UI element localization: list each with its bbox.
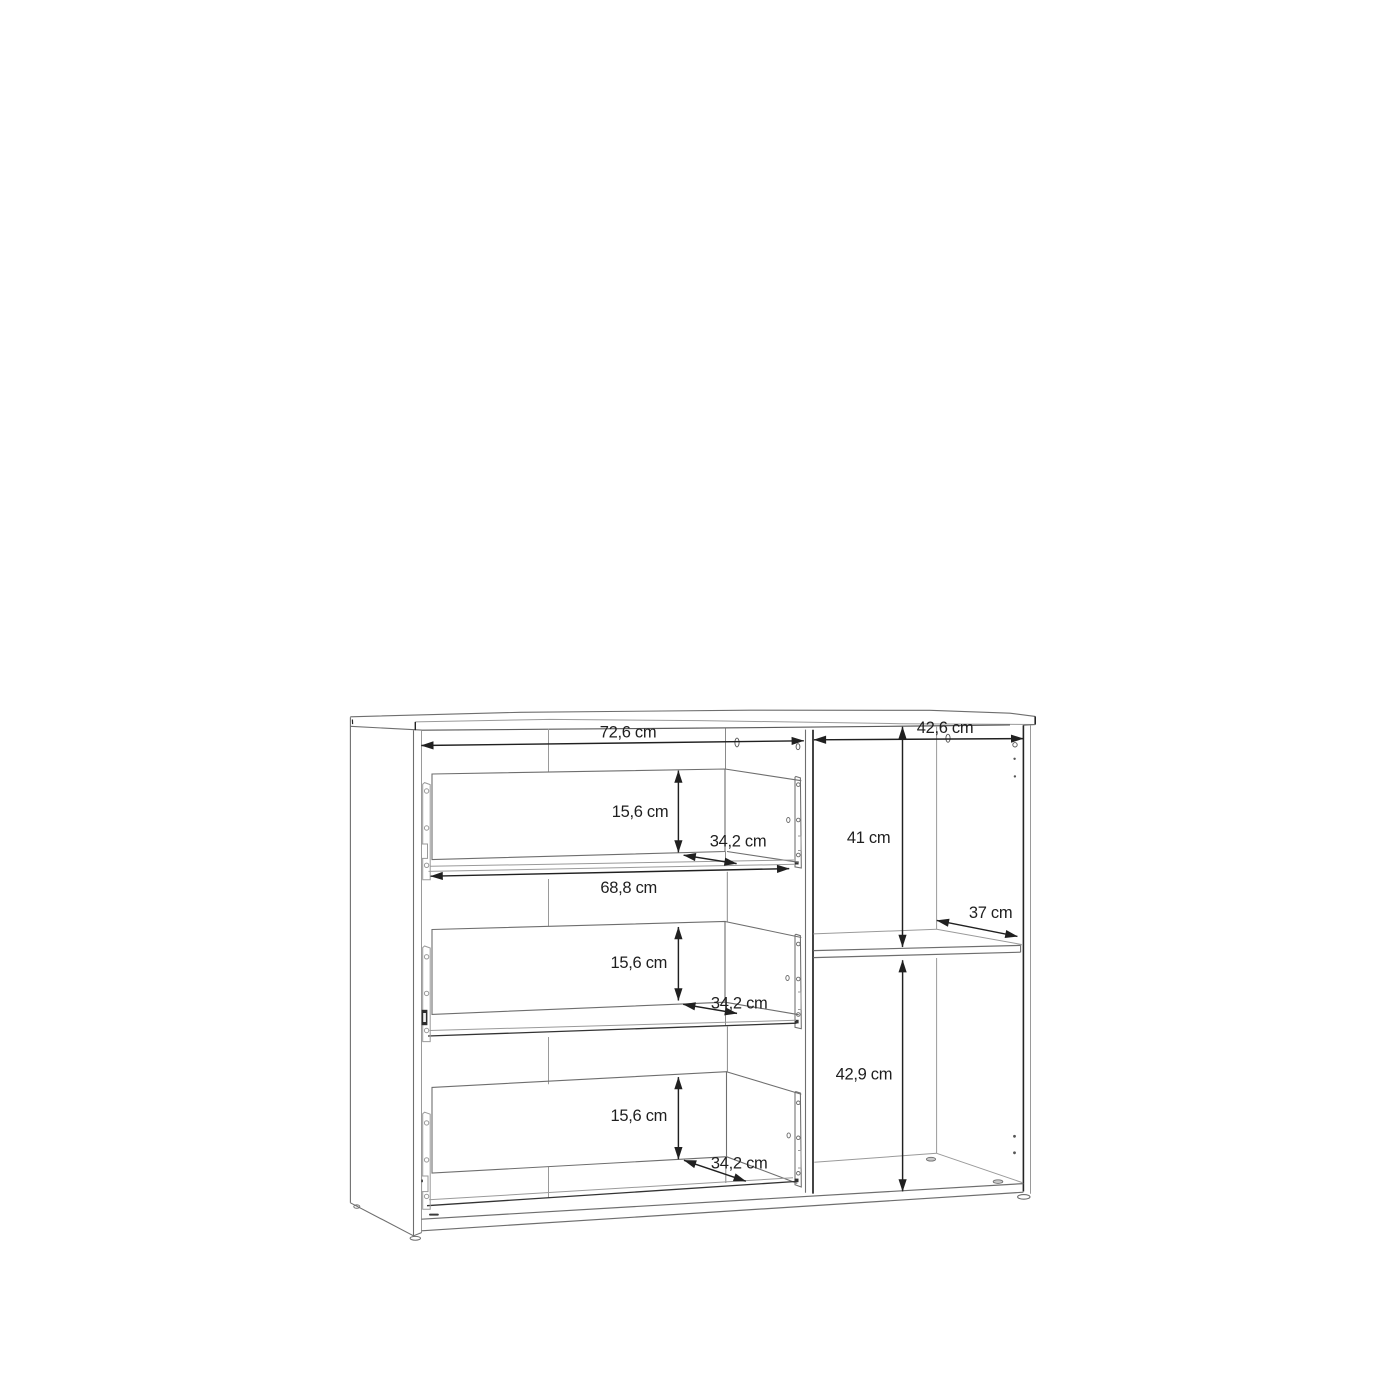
svg-text:68,8 cm: 68,8 cm [600,879,657,897]
svg-text:15,6 cm: 15,6 cm [611,954,668,972]
svg-text:34,2 cm: 34,2 cm [711,995,768,1013]
svg-text:72,6 cm: 72,6 cm [600,724,657,742]
svg-text:42,9 cm: 42,9 cm [836,1065,893,1083]
svg-text:34,2 cm: 34,2 cm [710,833,767,851]
svg-text:42,6 cm: 42,6 cm [917,719,974,737]
svg-text:37 cm: 37 cm [969,904,1012,922]
svg-text:41 cm: 41 cm [847,829,890,847]
svg-text:15,6 cm: 15,6 cm [612,803,669,821]
svg-text:34,2 cm: 34,2 cm [711,1155,768,1173]
svg-text:15,6 cm: 15,6 cm [611,1107,668,1125]
